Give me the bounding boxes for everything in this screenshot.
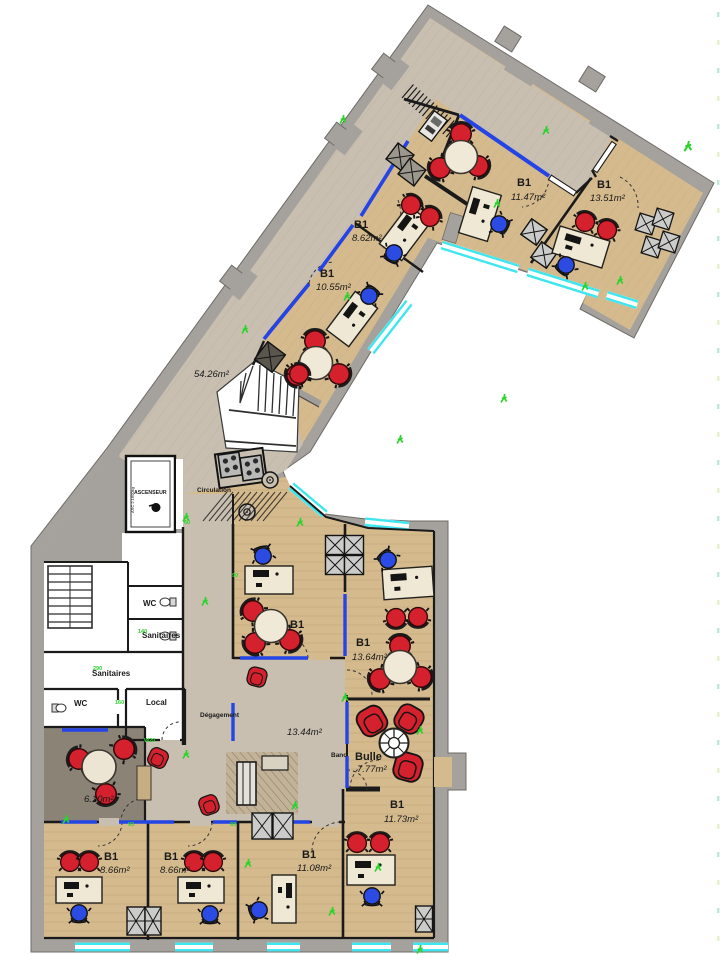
svg-text:ASCENSEUR: ASCENSEUR	[134, 490, 167, 496]
svg-text:B1: B1	[597, 179, 611, 191]
svg-text:WC: WC	[143, 599, 157, 608]
svg-text:ASC 2 1600kg: ASC 2 1600kg	[130, 487, 135, 513]
svg-text:8.62m²: 8.62m²	[352, 233, 382, 244]
svg-text:160: 160	[115, 700, 124, 706]
svg-text:8.66m²: 8.66m²	[100, 865, 130, 876]
svg-text:B1: B1	[390, 799, 404, 811]
svg-text:7.77m²: 7.77m²	[357, 764, 387, 775]
svg-text:90: 90	[232, 573, 238, 579]
svg-text:11.73m²: 11.73m²	[384, 814, 419, 825]
svg-text:13.44m²: 13.44m²	[287, 727, 323, 738]
svg-text:13.64m²: 13.64m²	[352, 652, 388, 663]
svg-text:140: 140	[138, 629, 147, 635]
svg-text:Bulle: Bulle	[355, 751, 382, 763]
svg-text:WC: WC	[74, 699, 88, 708]
svg-text:B1: B1	[290, 619, 304, 631]
svg-text:B1: B1	[164, 851, 178, 863]
svg-text:B1: B1	[302, 849, 316, 861]
svg-text:93: 93	[128, 822, 134, 828]
svg-text:93: 93	[230, 822, 236, 828]
svg-text:11.08m²: 11.08m²	[297, 863, 332, 874]
svg-text:8.66m²: 8.66m²	[160, 865, 190, 876]
svg-text:290: 290	[93, 666, 102, 672]
svg-text:B1: B1	[517, 177, 531, 189]
svg-text:Sanitaires: Sanitaires	[142, 631, 181, 640]
svg-text:10.55m²: 10.55m²	[316, 282, 352, 293]
svg-text:11.47m²: 11.47m²	[511, 192, 546, 203]
svg-text:Circulation: Circulation	[197, 487, 231, 494]
svg-text:13.51m²: 13.51m²	[590, 193, 626, 204]
svg-text:54.26m²: 54.26m²	[194, 369, 230, 380]
svg-text:B1: B1	[354, 219, 368, 231]
svg-text:B1: B1	[104, 851, 118, 863]
svg-text:B1: B1	[320, 268, 334, 280]
svg-text:Local: Local	[146, 698, 167, 707]
svg-text:6.10m²: 6.10m²	[84, 794, 114, 805]
svg-text:Banc: Banc	[331, 752, 347, 759]
svg-text:W20: W20	[144, 738, 155, 744]
svg-text:60: 60	[184, 520, 190, 526]
svg-text:B1: B1	[356, 637, 370, 649]
svg-text:Dégagement: Dégagement	[200, 712, 240, 719]
